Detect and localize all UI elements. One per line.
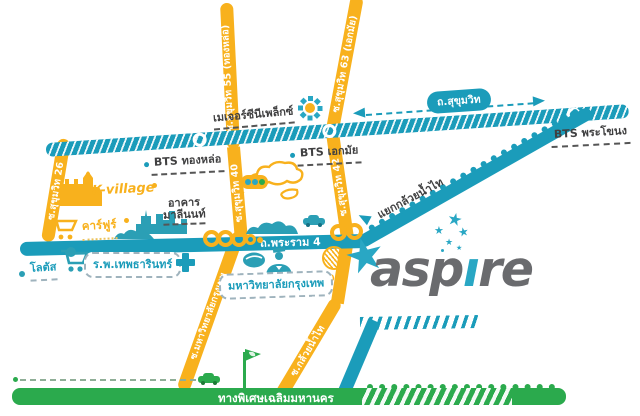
traffic-light-icon [241, 175, 268, 189]
theptarin-hospital-label: ร.พ.เทพธารินทร์ [84, 252, 181, 278]
road-label-soi-40: ซ.สุขุมวิท 40 [227, 163, 247, 223]
bts-ekkamai-label: BTS เอกมัย [296, 140, 361, 166]
lotus-dot [19, 271, 25, 277]
bts-ekkamai-station-marker [322, 124, 337, 139]
logo-text-end: re [478, 241, 532, 298]
road-label-rama4: ถ.พระราม 4 [260, 232, 321, 251]
dashed-line-dot [13, 377, 18, 382]
logo-small-star-icon: ★ [457, 225, 470, 239]
carrefour-dot [124, 218, 129, 223]
logo-text-start: asp [370, 241, 463, 298]
bush-icon [114, 227, 154, 239]
maleenont-label: อาคาร มาลีนนท์ [163, 196, 206, 225]
station-dot-icon [144, 162, 149, 167]
cineplex-flower-icon [299, 97, 321, 119]
junction-arrow-icon [356, 211, 371, 225]
aspire-logo: aspıre [370, 245, 533, 294]
road-label-soi-63: ซ.สุขุมวิท 63 (เอกมัย) [329, 14, 362, 114]
arrow-left-icon [353, 108, 366, 119]
rama4-junction-dot [257, 237, 263, 243]
expressway-dashed-line [20, 379, 196, 381]
logo-hatched-strip [360, 315, 478, 330]
bts-phrakhanong-label: BTS พระโขนง [550, 121, 630, 148]
bts-thonglor-label: BTS ทองหล่อ [150, 149, 225, 176]
bangkok-university-label: มหาวิทยาลัยกรุงเทพ [219, 270, 334, 300]
k-village-label: K-village [92, 180, 155, 198]
logo-small-star-icon: ★ [434, 225, 444, 236]
bush-icon [246, 219, 302, 234]
expressway-hatch [362, 388, 512, 405]
maleenont-line2: มาลีนนท์ [163, 208, 206, 225]
arrow-right-icon [533, 96, 546, 107]
aspire-location-map: ทางพิเศษเฉลิมมหานคร ซ.สุขุมวิท 55 (ทองหล… [0, 0, 640, 416]
road-label-soi-kluai-nam-thai: ซ.กล้วยน้ำไท [287, 323, 329, 380]
teal-car-icon [303, 214, 325, 227]
hospital-cross-icon [176, 253, 195, 272]
k-village-dot [152, 183, 157, 188]
expressway-label: ทางพิเศษเฉลิมมหานคร [218, 390, 334, 408]
lotus-label: โลตัส [29, 257, 57, 281]
road-label-soi-42: ซ.สุขุมวิท 42 [328, 157, 351, 217]
green-car-icon [198, 372, 220, 385]
rama4-junction-ring [245, 234, 256, 245]
carrefour-cart-icon [51, 216, 79, 241]
carrefour-label: คาร์ฟูร์ [81, 216, 117, 241]
bts-thonglor-station-marker [192, 132, 207, 147]
logo-text-i: ı [463, 241, 478, 298]
